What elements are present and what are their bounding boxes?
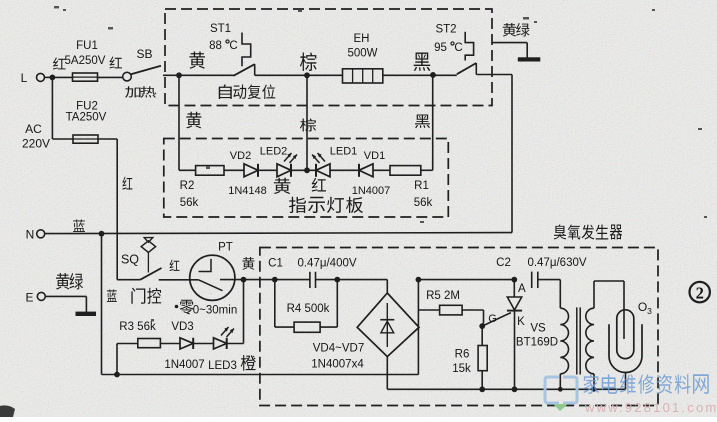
svg-text:1N4007x4: 1N4007x4 [311,359,364,371]
svg-text:SB: SB [136,47,152,61]
svg-text:500W: 500W [347,48,377,60]
svg-text:O: O [638,300,647,314]
svg-text:VD4~VD7: VD4~VD7 [313,343,364,355]
svg-text:56k: 56k [414,197,433,209]
svg-text:BT169D: BT169D [516,337,558,349]
svg-text:TA250V: TA250V [66,112,107,124]
svg-text:56k: 56k [180,197,199,209]
svg-text:1N4007: 1N4007 [352,185,391,197]
svg-text:C1: C1 [268,258,283,270]
svg-text:R1: R1 [414,180,429,192]
svg-text:LED3: LED3 [208,360,237,372]
svg-text:R4 500k: R4 500k [287,303,330,315]
svg-text:LED1: LED1 [330,146,358,158]
svg-text:N: N [26,228,35,242]
svg-text:R5 2M: R5 2M [426,290,460,302]
svg-text:L: L [21,71,28,85]
svg-text:ST1: ST1 [210,23,231,35]
svg-text:15k: 15k [452,363,471,375]
svg-text:R2: R2 [180,180,195,192]
svg-text:VD2: VD2 [230,150,251,162]
svg-text:C: C [454,42,462,54]
svg-text:0~30min: 0~30min [193,305,237,317]
svg-text:SQ: SQ [121,253,139,267]
svg-text:ST2: ST2 [435,24,456,36]
svg-text:G: G [488,313,497,325]
svg-text:VS: VS [530,323,546,335]
svg-text:95: 95 [434,42,447,54]
svg-text:88: 88 [209,40,222,52]
svg-text:220V: 220V [22,137,50,151]
svg-text:LED2: LED2 [260,146,288,158]
svg-text:A: A [518,283,526,295]
svg-text:VD3: VD3 [171,321,193,333]
svg-text:EH: EH [354,33,370,45]
svg-text:2: 2 [696,283,704,302]
svg-text:C: C [229,40,237,52]
svg-text:R3 56k: R3 56k [119,321,156,333]
svg-text:AC: AC [25,122,42,136]
svg-text:www.928101.com: www.928101.com [584,400,717,415]
svg-text:0.47μ/630V: 0.47μ/630V [527,257,586,269]
svg-text:VD1: VD1 [364,150,385,162]
svg-text:3: 3 [647,306,652,316]
svg-text:FU1: FU1 [76,40,98,52]
svg-text:E: E [25,291,33,305]
svg-text:5A250V: 5A250V [65,55,106,67]
svg-text:1N4148: 1N4148 [228,185,267,197]
svg-text:R6: R6 [455,349,470,361]
svg-text:PT: PT [218,242,233,254]
svg-text:C2: C2 [496,257,511,269]
svg-text:K: K [517,316,525,328]
svg-text:1N4007: 1N4007 [164,359,204,371]
svg-text:0.47μ/400V: 0.47μ/400V [297,258,356,270]
